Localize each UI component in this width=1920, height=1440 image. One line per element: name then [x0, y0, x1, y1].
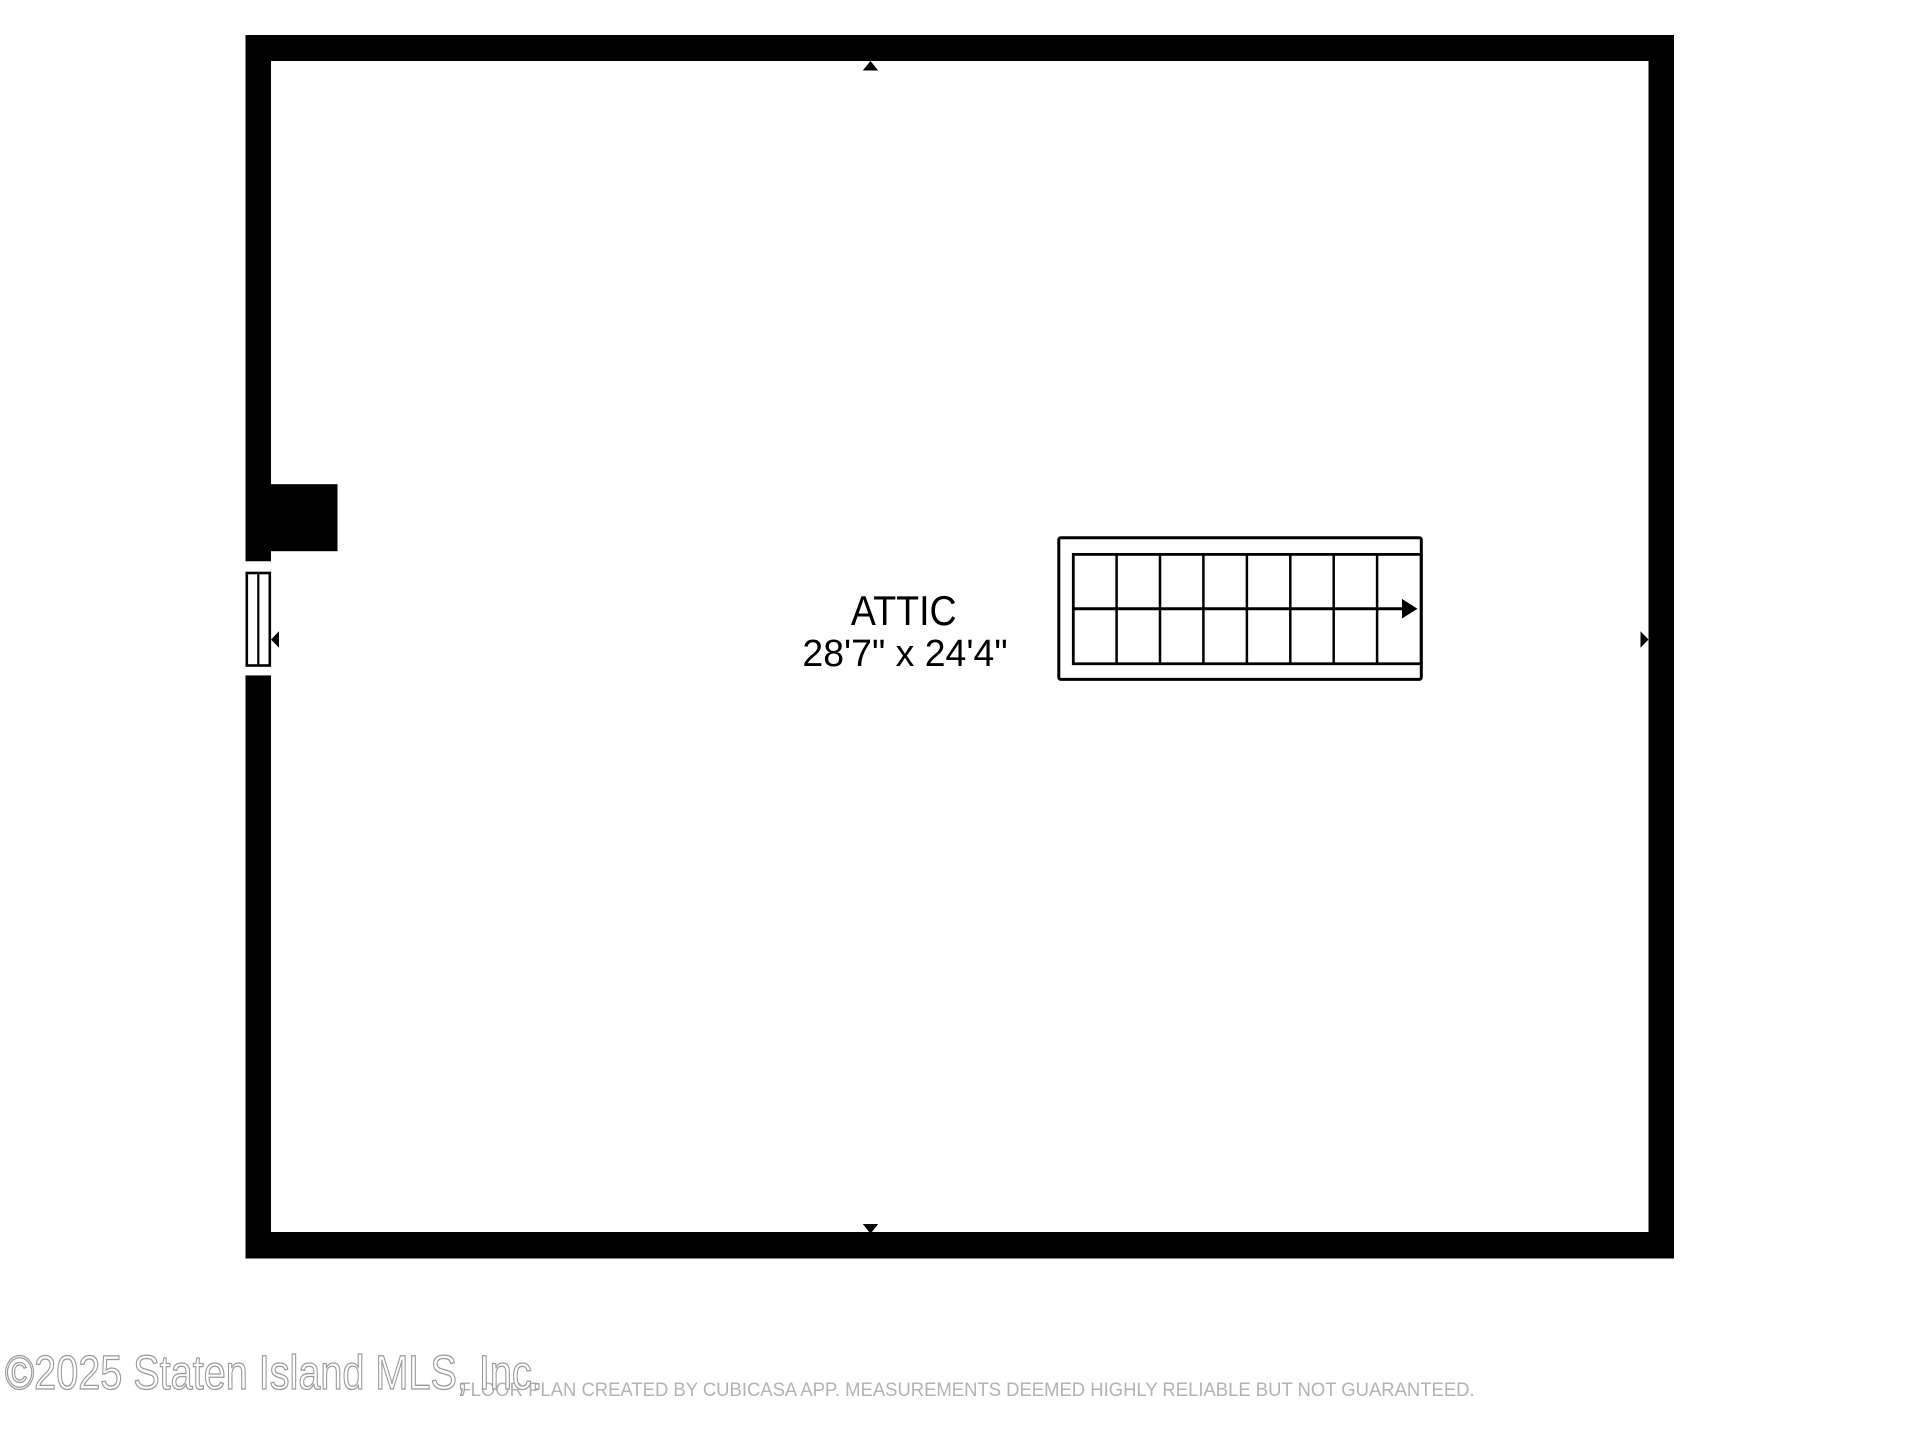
svg-text:FLOOR PLAN CREATED BY CUBICASA: FLOOR PLAN CREATED BY CUBICASA APP. MEAS… — [459, 1380, 1474, 1402]
svg-text:©2025 Staten Island MLS, Inc.: ©2025 Staten Island MLS, Inc. — [5, 1346, 543, 1399]
svg-text:ATTIC: ATTIC — [851, 588, 957, 634]
svg-text:28'7" x 24'4": 28'7" x 24'4" — [802, 632, 1007, 674]
